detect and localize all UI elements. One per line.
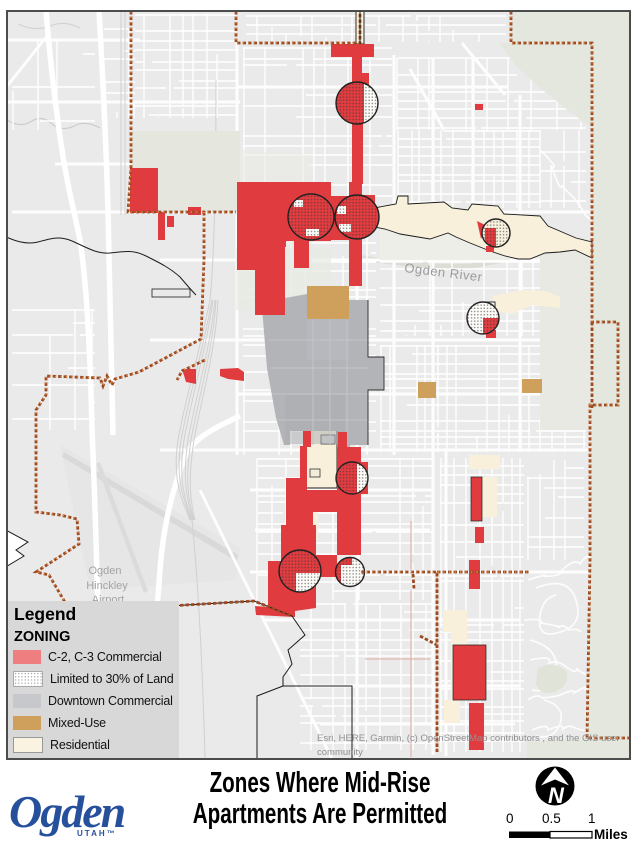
svg-text:0: 0 <box>506 811 514 826</box>
svg-text:community: community <box>317 747 363 758</box>
svg-text:0.5: 0.5 <box>542 811 561 826</box>
svg-text:Hinckley: Hinckley <box>86 580 128 592</box>
svg-text:Ogden: Ogden <box>88 565 121 577</box>
svg-text:Esri, HERE, Garmin, (c) OpenSt: Esri, HERE, Garmin, (c) OpenStreetMap co… <box>317 733 620 744</box>
svg-text:Miles: Miles <box>594 827 628 842</box>
svg-text:1: 1 <box>588 811 596 826</box>
svg-text:N: N <box>548 783 565 807</box>
